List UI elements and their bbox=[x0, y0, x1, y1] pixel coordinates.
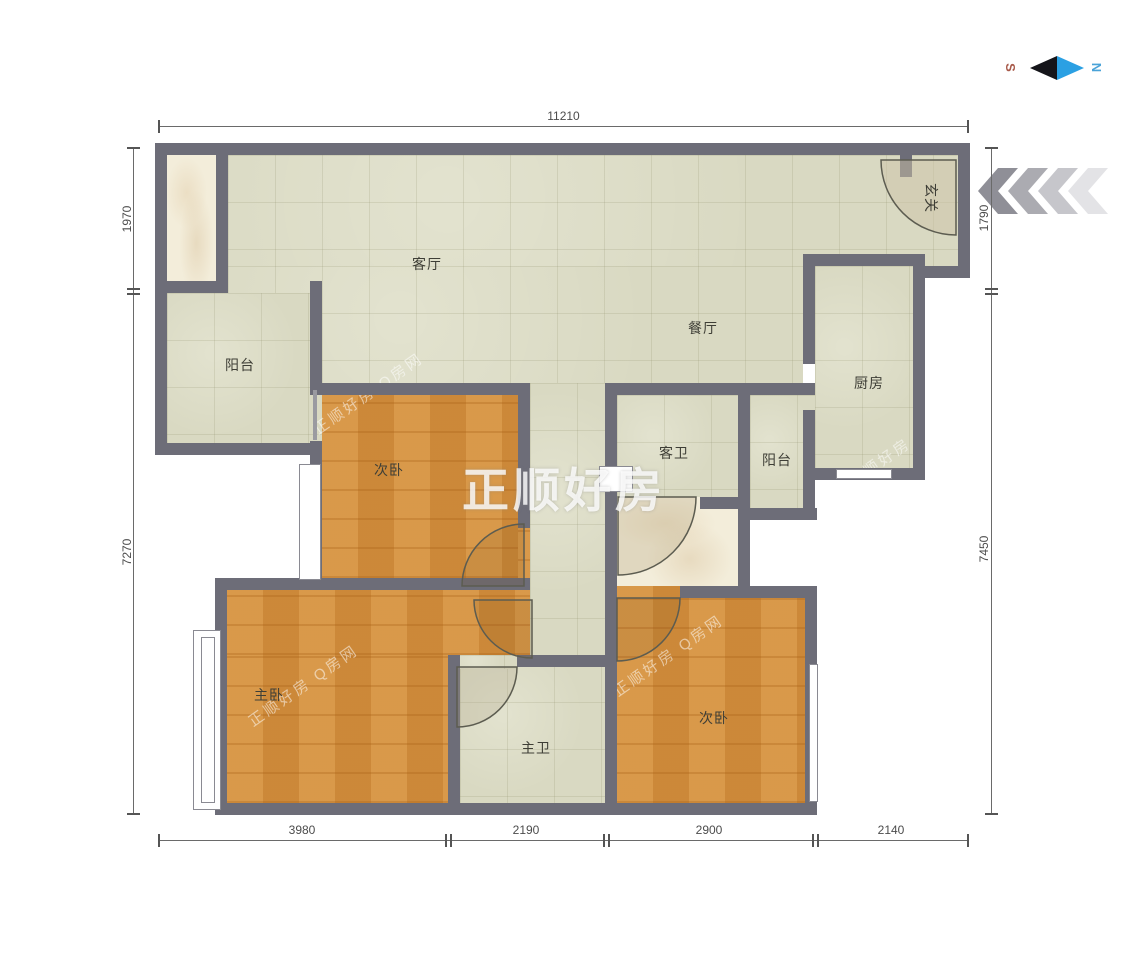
dim-tick bbox=[127, 288, 140, 290]
dimension-line-bottom bbox=[158, 840, 969, 841]
compass-north-label: N bbox=[1089, 63, 1104, 72]
wall-segment bbox=[605, 383, 617, 815]
dim-tick bbox=[158, 834, 160, 847]
floorplan-canvas: 正顺好房 Q房网 正顺好房 Q房网 正顺好房 Q房网 正顺好房 Q房网 bbox=[0, 0, 1125, 970]
compass-needle-icon bbox=[1030, 56, 1057, 80]
dimension-line-right bbox=[991, 148, 992, 815]
wall-segment bbox=[803, 254, 815, 364]
dim-tick bbox=[985, 147, 998, 149]
window bbox=[809, 664, 818, 802]
wall-segment bbox=[216, 155, 228, 293]
dimension-right-upper-value: 1790 bbox=[977, 197, 991, 239]
dimension-line-top bbox=[158, 126, 969, 127]
dim-tick bbox=[817, 834, 819, 847]
room-label-balcony-left: 阳台 bbox=[212, 355, 268, 373]
window bbox=[299, 464, 321, 580]
dimension-bottom-value: 2900 bbox=[669, 823, 749, 837]
room-label-bedroom-bottom: 次卧 bbox=[686, 708, 742, 726]
wall-segment bbox=[750, 508, 817, 520]
dim-tick bbox=[985, 813, 998, 815]
room-label-dining: 餐厅 bbox=[675, 318, 731, 336]
floor-door-patch-masterbath bbox=[457, 655, 517, 669]
dimension-right-lower-value: 7450 bbox=[977, 528, 991, 570]
wall-segment bbox=[155, 443, 322, 455]
dim-tick bbox=[127, 813, 140, 815]
floor-bedroom-bottom-doorway bbox=[617, 586, 687, 600]
dim-tick bbox=[445, 834, 447, 847]
dim-tick bbox=[127, 147, 140, 149]
dim-tick bbox=[450, 834, 452, 847]
dimension-bottom-value: 2140 bbox=[851, 823, 931, 837]
wall-segment bbox=[913, 266, 970, 278]
room-label-master-bathroom: 主卫 bbox=[508, 738, 564, 756]
sliding-door-line bbox=[313, 390, 317, 440]
dimension-bottom-value: 2190 bbox=[486, 823, 566, 837]
dim-tick bbox=[812, 834, 814, 847]
room-label-master-bedroom: 主卧 bbox=[241, 685, 297, 703]
room-label-living: 客厅 bbox=[399, 254, 455, 272]
wall-segment bbox=[155, 143, 167, 455]
window bbox=[836, 469, 892, 479]
wall-segment bbox=[700, 497, 750, 509]
dim-tick bbox=[967, 834, 969, 847]
wall-segment bbox=[900, 155, 912, 177]
wall-segment bbox=[448, 655, 460, 815]
wall-segment bbox=[155, 143, 970, 155]
room-label-balcony-middle: 阳台 bbox=[749, 450, 805, 468]
room-label-entryway: 玄关 bbox=[923, 170, 941, 226]
dim-tick bbox=[127, 293, 140, 295]
dim-tick bbox=[603, 834, 605, 847]
dimension-left-upper-value: 1970 bbox=[120, 198, 134, 240]
wall-segment bbox=[310, 383, 530, 395]
floor-master-bathroom bbox=[460, 655, 605, 803]
wall-segment bbox=[913, 278, 925, 480]
wall-segment bbox=[155, 281, 228, 293]
dimension-top-value: 11210 bbox=[158, 109, 969, 123]
floor-master-bedroom-nook bbox=[227, 590, 530, 655]
window-bay-inner bbox=[201, 637, 215, 803]
dim-tick bbox=[985, 288, 998, 290]
watermark-center: 正顺好房 bbox=[462, 452, 666, 521]
wall-segment bbox=[310, 281, 322, 387]
wall-segment bbox=[738, 383, 750, 598]
dimension-left-lower-value: 7270 bbox=[120, 531, 134, 573]
room-label-bedroom-top: 次卧 bbox=[361, 460, 417, 478]
wall-segment bbox=[803, 254, 925, 266]
wall-segment bbox=[517, 655, 605, 667]
dimension-bottom-value: 3980 bbox=[262, 823, 342, 837]
wall-segment bbox=[605, 383, 815, 395]
floor-shaft bbox=[167, 155, 216, 281]
entry-arrow-icon bbox=[1068, 168, 1108, 214]
dimension-line-left bbox=[133, 148, 134, 815]
wall-segment bbox=[215, 578, 530, 590]
dim-tick bbox=[985, 293, 998, 295]
room-label-kitchen: 厨房 bbox=[841, 373, 897, 391]
dim-tick bbox=[608, 834, 610, 847]
wall-segment bbox=[958, 143, 970, 278]
wall-segment bbox=[215, 803, 817, 815]
floor-living-dining-top bbox=[228, 155, 958, 266]
compass-south-label: S bbox=[1003, 63, 1018, 72]
compass-needle-icon bbox=[1057, 56, 1084, 80]
floor-master-bedroom bbox=[227, 655, 448, 803]
